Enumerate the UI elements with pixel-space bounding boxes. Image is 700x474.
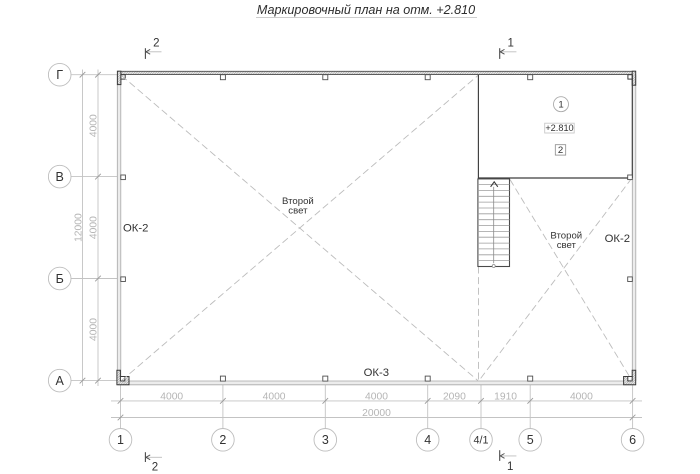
svg-text:4000: 4000: [263, 391, 286, 402]
svg-text:Маркировочный план на отм. +2.: Маркировочный план на отм. +2.810: [257, 3, 475, 17]
svg-text:1: 1: [117, 433, 124, 447]
svg-text:4: 4: [424, 433, 431, 447]
svg-text:2: 2: [153, 38, 159, 50]
svg-text:4000: 4000: [160, 391, 183, 402]
svg-text:4000: 4000: [570, 391, 593, 402]
svg-text:+2.810: +2.810: [545, 123, 573, 133]
svg-text:6: 6: [629, 433, 636, 447]
svg-text:1: 1: [507, 38, 513, 50]
svg-text:1910: 1910: [494, 391, 517, 402]
svg-text:4/1: 4/1: [473, 435, 488, 447]
svg-text:1: 1: [558, 100, 563, 111]
svg-text:2: 2: [152, 462, 158, 474]
svg-text:свет: свет: [288, 206, 308, 217]
svg-text:12000: 12000: [73, 213, 84, 242]
svg-text:А: А: [56, 374, 65, 388]
svg-text:4000: 4000: [365, 391, 388, 402]
svg-text:ОК-2: ОК-2: [123, 222, 148, 234]
svg-text:ОК-2: ОК-2: [605, 233, 630, 245]
svg-text:ОК-3: ОК-3: [364, 367, 389, 379]
svg-text:2090: 2090: [443, 391, 466, 402]
svg-text:В: В: [56, 170, 64, 184]
svg-text:20000: 20000: [362, 408, 391, 419]
svg-text:2: 2: [558, 145, 563, 156]
svg-text:4000: 4000: [88, 114, 99, 137]
svg-text:1: 1: [507, 461, 513, 473]
svg-text:свет: свет: [557, 240, 577, 251]
svg-text:Б: Б: [56, 272, 64, 286]
svg-text:4000: 4000: [88, 318, 99, 341]
svg-text:Г: Г: [56, 68, 63, 82]
svg-text:3: 3: [322, 433, 329, 447]
svg-text:4000: 4000: [88, 216, 99, 239]
svg-text:2: 2: [219, 433, 226, 447]
svg-text:5: 5: [527, 433, 534, 447]
